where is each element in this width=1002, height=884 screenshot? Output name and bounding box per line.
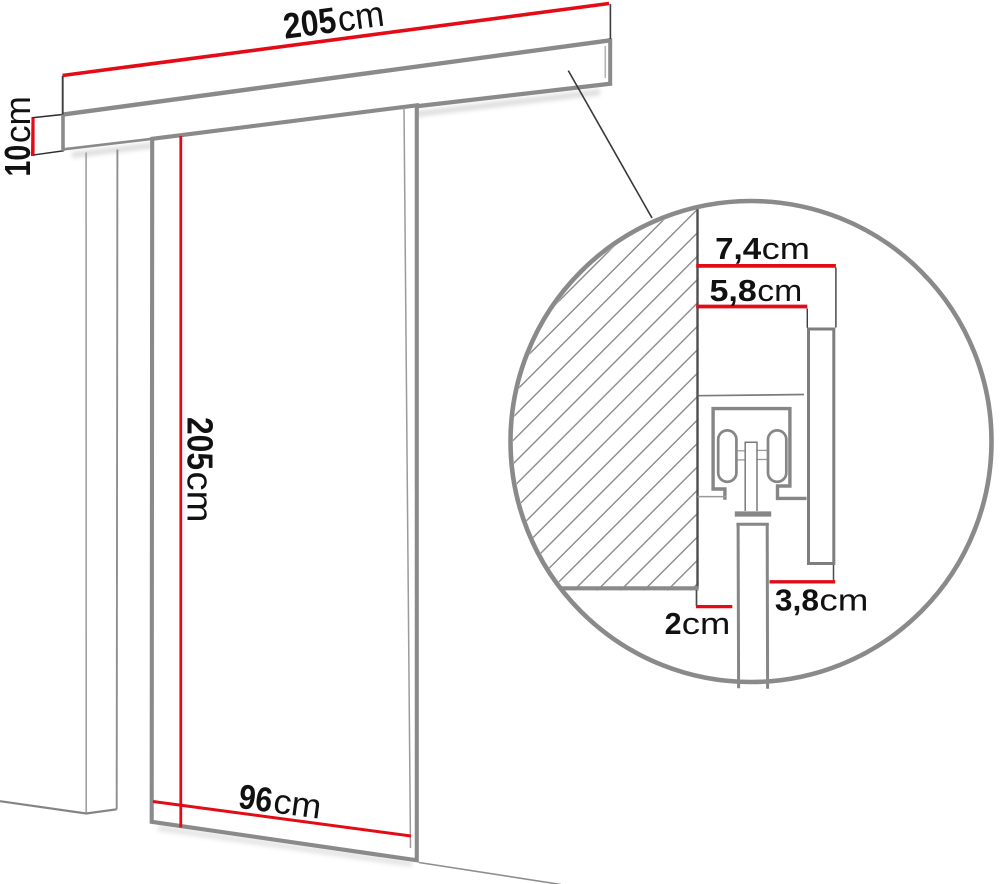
svg-text:7,4: 7,4 bbox=[715, 231, 762, 266]
svg-text:2: 2 bbox=[665, 606, 682, 641]
svg-text:3,8: 3,8 bbox=[775, 583, 819, 618]
svg-text:cm: cm bbox=[819, 583, 868, 618]
svg-text:cm: cm bbox=[271, 783, 324, 827]
svg-text:205: 205 bbox=[281, 0, 339, 47]
svg-text:cm: cm bbox=[335, 0, 386, 40]
svg-text:cm: cm bbox=[757, 273, 802, 308]
svg-text:96: 96 bbox=[236, 778, 274, 820]
svg-text:cm: cm bbox=[180, 472, 221, 523]
svg-text:cm: cm bbox=[762, 231, 810, 266]
svg-text:cm: cm bbox=[0, 96, 38, 143]
svg-text:205: 205 bbox=[180, 417, 221, 470]
svg-text:5,8: 5,8 bbox=[710, 273, 757, 308]
svg-text:10: 10 bbox=[0, 145, 38, 177]
svg-text:cm: cm bbox=[682, 606, 731, 641]
